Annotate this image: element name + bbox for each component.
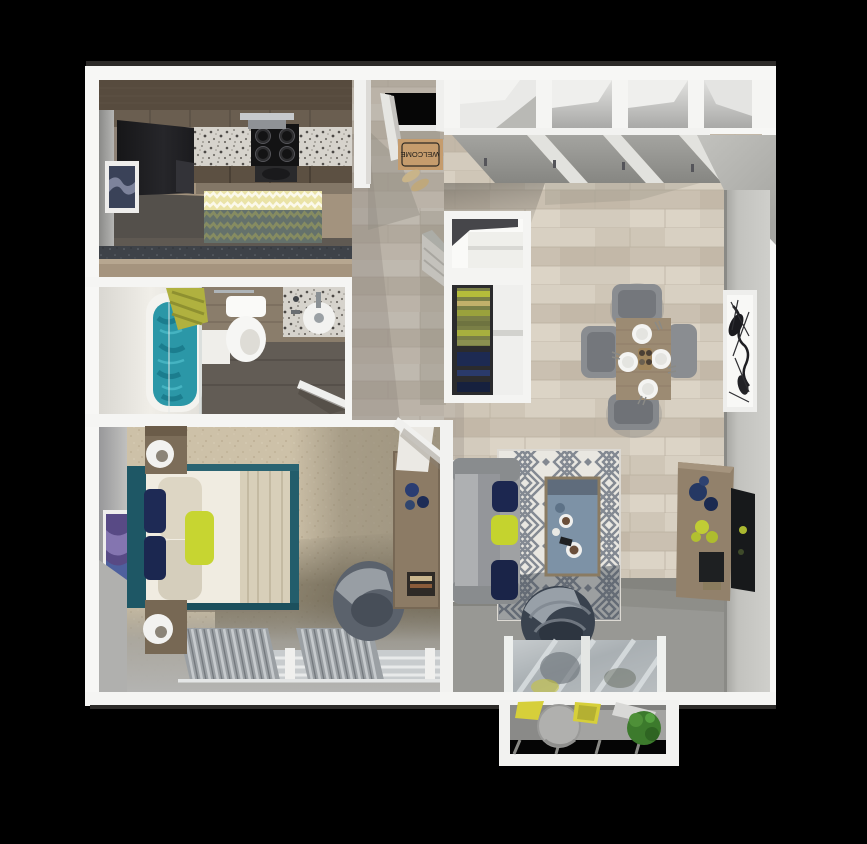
svg-text:WELCOME: WELCOME — [401, 150, 440, 159]
